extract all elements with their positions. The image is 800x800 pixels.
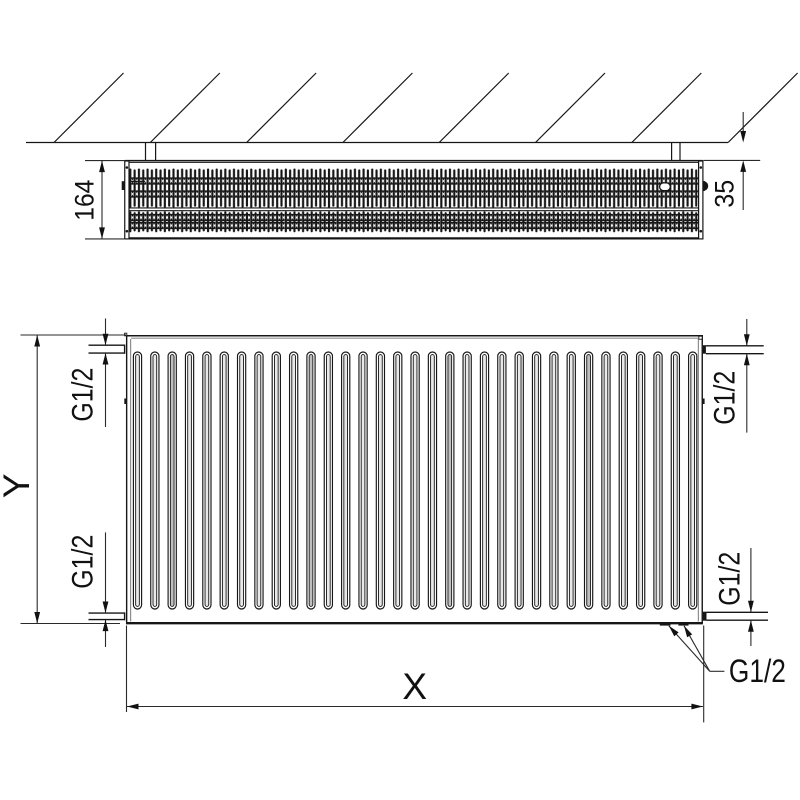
- svg-text:164: 164: [70, 180, 100, 221]
- svg-text:X: X: [402, 666, 427, 707]
- svg-text:35: 35: [710, 180, 740, 208]
- svg-text:G1/2: G1/2: [67, 368, 100, 422]
- svg-text:Y: Y: [0, 473, 37, 498]
- svg-text:G1/2: G1/2: [729, 653, 786, 689]
- svg-text:G1/2: G1/2: [67, 535, 100, 589]
- svg-text:G1/2: G1/2: [714, 552, 747, 606]
- svg-text:G1/2: G1/2: [709, 371, 742, 425]
